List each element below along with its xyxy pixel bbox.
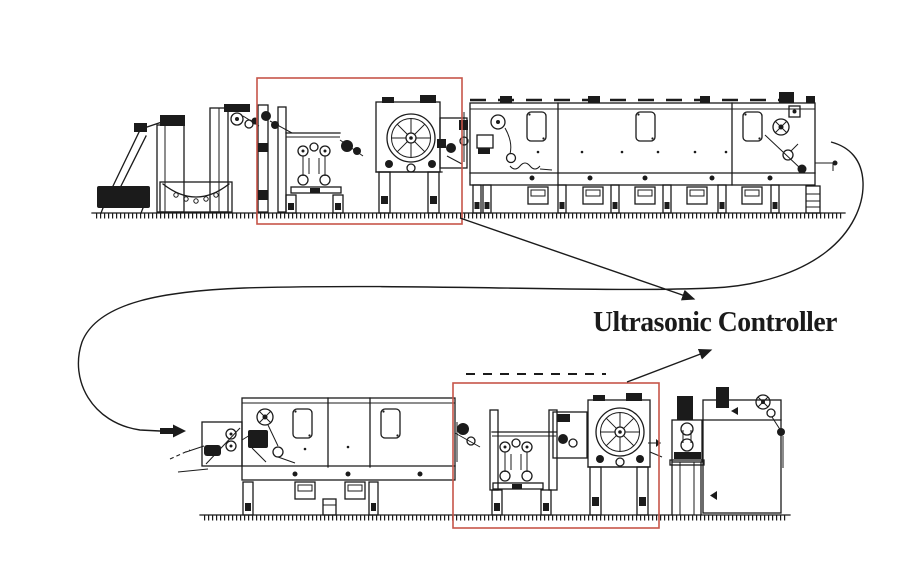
highlight-box-bottom [453, 383, 659, 528]
drawer-box [742, 187, 762, 204]
door-panel [527, 112, 546, 141]
delivery-unit [703, 387, 785, 513]
machine-diagram: Ultrasonic Controller [0, 0, 900, 584]
top-cylinder-wheel-icon [387, 114, 435, 162]
figure-canvas: Ultrasonic Controller [0, 0, 900, 584]
top-draft-section [258, 105, 363, 213]
top-cylinder-unit [376, 95, 468, 213]
creel-tower [670, 396, 704, 515]
bottom-machine-line [170, 374, 790, 518]
drawer-box [583, 187, 603, 204]
top-body [470, 92, 838, 213]
draft-rollers-icon [291, 143, 341, 193]
drawer-box [635, 187, 655, 204]
leader-arrow-bottom [627, 350, 711, 382]
drawer-box [687, 187, 707, 204]
door-panel [636, 112, 655, 141]
web-loop-arrowhead-icon [160, 425, 186, 438]
ground-hatch-top [92, 213, 845, 216]
bottom-cylinder-wheel-icon [596, 408, 644, 456]
leader-arrow-top [460, 218, 694, 299]
top-feeder-unit [97, 104, 259, 213]
door-panel [381, 409, 400, 438]
drawer-box [295, 482, 315, 499]
door-panel [743, 112, 762, 141]
ultrasonic-controller-label: Ultrasonic Controller [593, 307, 837, 338]
door-panel [293, 409, 312, 438]
top-machine-line [92, 92, 845, 216]
drawer-box [528, 187, 548, 204]
drawer-box [345, 482, 365, 499]
bottom-draft-section [455, 410, 587, 515]
bottom-cylinder-unit [588, 393, 662, 515]
web-loop-arrow [78, 142, 863, 438]
draft-rollers-icon [493, 439, 543, 489]
